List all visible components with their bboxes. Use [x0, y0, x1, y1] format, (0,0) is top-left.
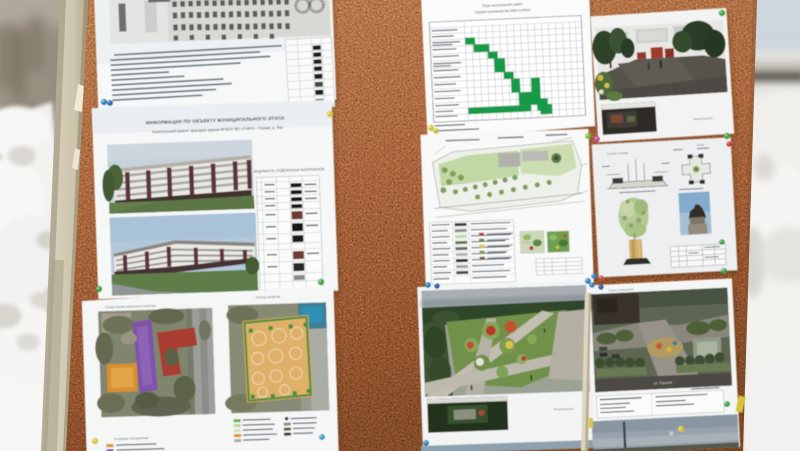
svg-text:План: План: [697, 143, 705, 147]
svg-text:Визуализация: Визуализация: [554, 407, 574, 412]
svg-text:Благоустройство: Благоустройство: [256, 295, 281, 300]
